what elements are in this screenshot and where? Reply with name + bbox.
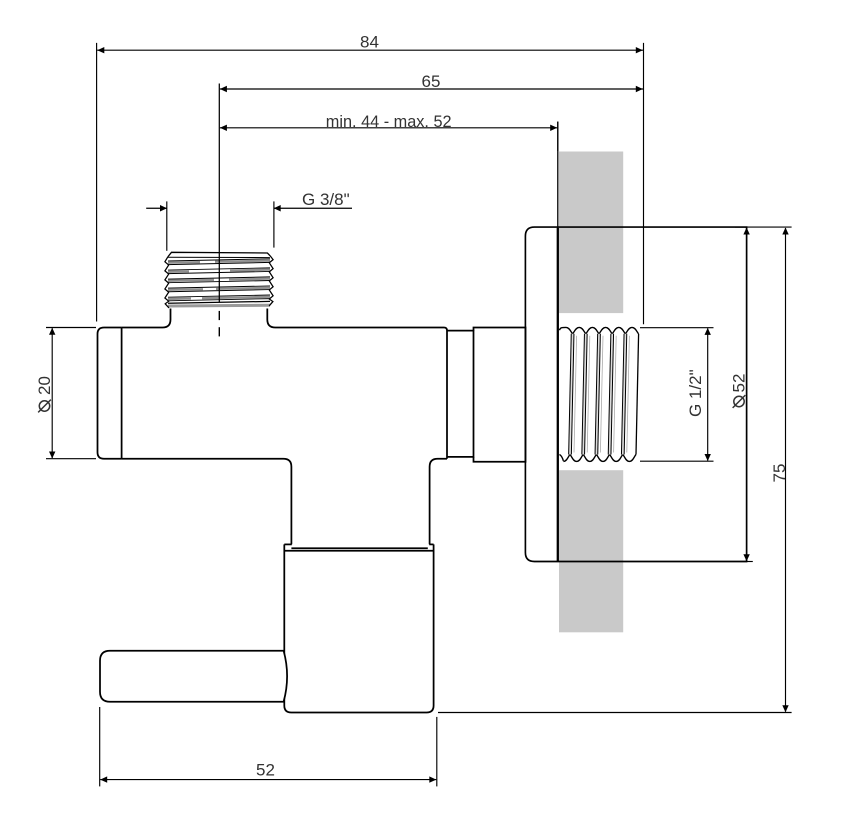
svg-text:min. 44 - max. 52: min. 44 - max. 52	[326, 113, 452, 131]
svg-text:84: 84	[360, 32, 379, 51]
svg-text:75: 75	[770, 464, 789, 483]
svg-text:20: 20	[35, 376, 54, 395]
svg-text:52: 52	[256, 761, 275, 780]
svg-text:G 3/8": G 3/8"	[302, 190, 350, 209]
svg-text:G 1/2": G 1/2"	[686, 369, 705, 417]
svg-text:65: 65	[422, 72, 441, 91]
svg-text:52: 52	[730, 374, 749, 393]
